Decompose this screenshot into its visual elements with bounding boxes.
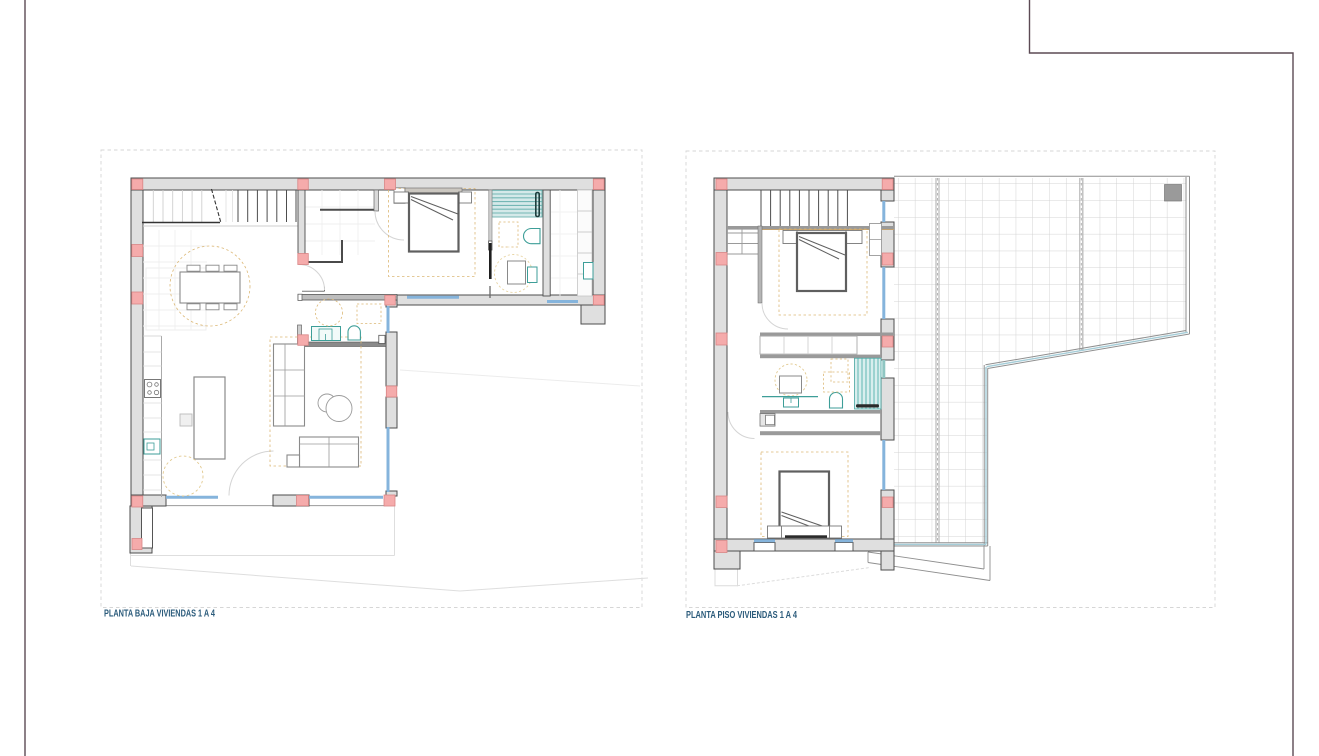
- svg-text:PLANTA BAJA VIVIENDAS 1 A 4: PLANTA BAJA VIVIENDAS 1 A 4: [104, 609, 215, 620]
- svg-text:PLANTA PISO VIVIENDAS 1 A 4: PLANTA PISO VIVIENDAS 1 A 4: [686, 610, 797, 621]
